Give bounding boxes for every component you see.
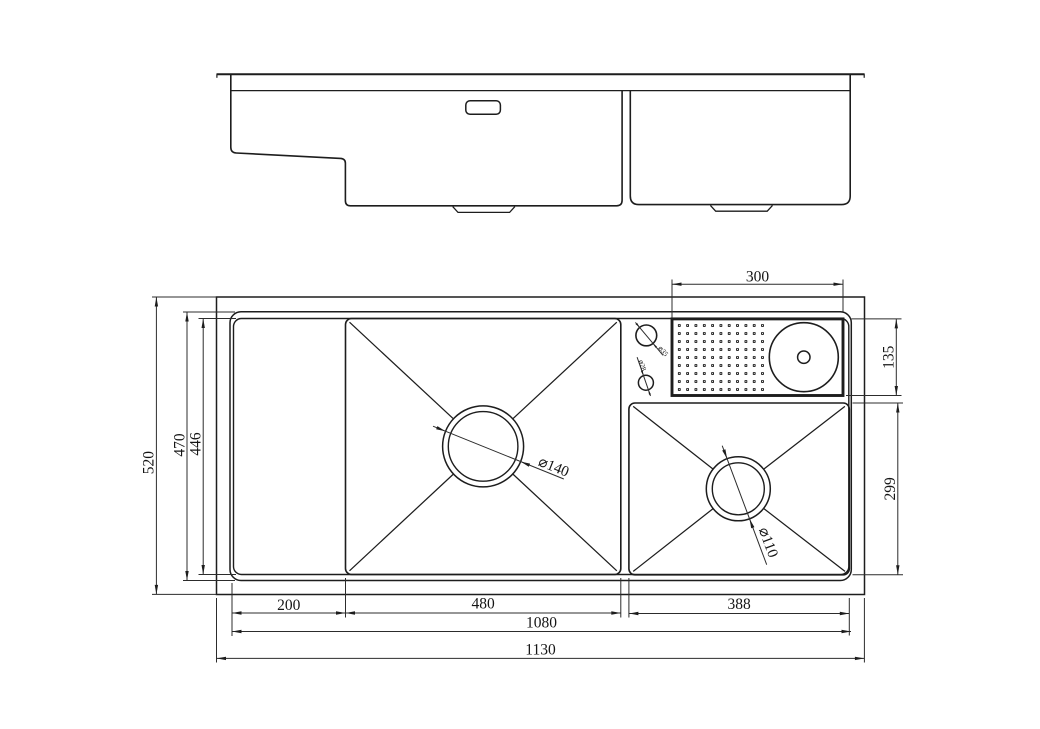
svg-text:446: 446 [188, 432, 205, 456]
svg-text:470: 470 [171, 433, 188, 457]
svg-text:1080: 1080 [526, 615, 557, 632]
svg-text:520: 520 [140, 451, 157, 475]
svg-text:300: 300 [746, 269, 770, 286]
svg-text:299: 299 [882, 477, 899, 501]
svg-text:388: 388 [727, 596, 751, 613]
svg-text:480: 480 [471, 596, 495, 613]
svg-text:135: 135 [881, 345, 898, 369]
svg-text:1130: 1130 [525, 642, 556, 659]
svg-text:200: 200 [277, 597, 301, 614]
